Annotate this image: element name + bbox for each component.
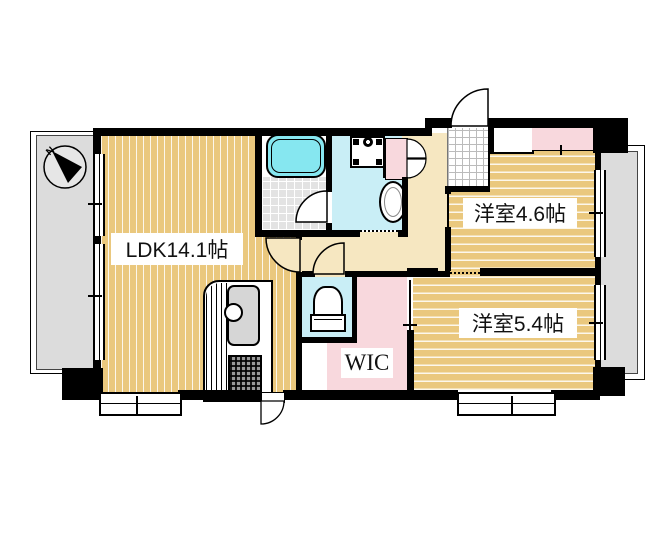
genkan-tile [447, 120, 490, 188]
wall [283, 390, 458, 400]
wall [445, 186, 490, 192]
storage-alcove [302, 342, 329, 393]
window-tick [136, 396, 138, 414]
wall [383, 136, 385, 178]
bathtub-icon [266, 134, 326, 178]
wall [93, 236, 101, 244]
toilet-door-icon [311, 241, 346, 276]
wall [407, 330, 414, 394]
wic-sliding-door [409, 280, 411, 330]
hall-cabinet [385, 138, 408, 180]
wall [93, 128, 101, 154]
wall [326, 128, 332, 192]
window-tick [511, 396, 513, 414]
washing-machine-icon [350, 136, 385, 168]
window-tick [88, 295, 102, 297]
room-partition-dotted [438, 272, 480, 274]
washroom-threshold-dotted [360, 230, 398, 232]
floor-plan: N [0, 0, 655, 536]
wall [595, 153, 601, 170]
wall [480, 268, 598, 276]
wall [332, 230, 360, 237]
wall [302, 337, 357, 343]
wall [402, 177, 408, 232]
toilet-tank-icon [310, 314, 346, 332]
wall [595, 360, 601, 368]
window-tick [589, 212, 603, 214]
window-tick [589, 322, 603, 324]
wall [425, 118, 432, 136]
wall [445, 227, 451, 271]
corner-pillar [593, 367, 625, 396]
faucet-icon [224, 303, 243, 322]
ldk-label: LDK14.1帖 [111, 233, 243, 265]
entry-door-icon [450, 86, 490, 128]
wic-label: WIC [341, 348, 393, 378]
wall [352, 277, 357, 342]
wall [296, 272, 302, 394]
bathroom-door-icon [294, 189, 329, 224]
wic-door-tick [403, 324, 417, 326]
bedroom1-label: 洋室4.6帖 [463, 198, 577, 228]
window-tick [88, 203, 102, 205]
corner-pillar [593, 118, 628, 153]
service-door-icon [259, 400, 287, 427]
window [93, 244, 105, 360]
wall [488, 118, 598, 128]
wall [407, 268, 438, 276]
bedroom2-label: 洋室5.4帖 [459, 308, 577, 338]
window [457, 392, 556, 416]
wall [95, 128, 432, 136]
closet-door-tick [560, 145, 562, 155]
window [93, 154, 105, 236]
window [99, 392, 182, 416]
ldk-door-icon [264, 236, 302, 274]
wall [178, 390, 261, 400]
corner-pillar [62, 368, 103, 400]
cabinet-double-doors-icon [406, 138, 430, 179]
wall [255, 128, 262, 237]
bedroom1-door [447, 194, 449, 227]
